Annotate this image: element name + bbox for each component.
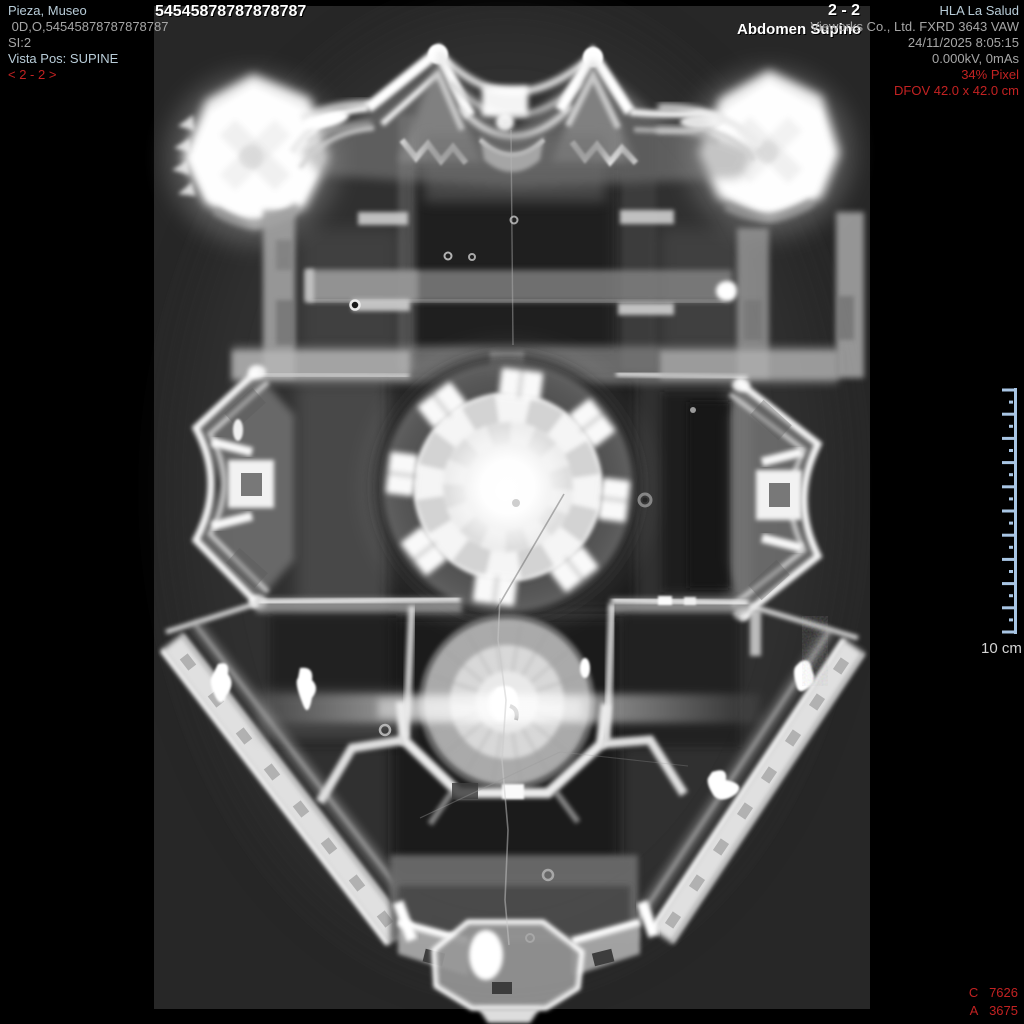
svg-text:10 cm: 10 cm: [981, 640, 1022, 657]
